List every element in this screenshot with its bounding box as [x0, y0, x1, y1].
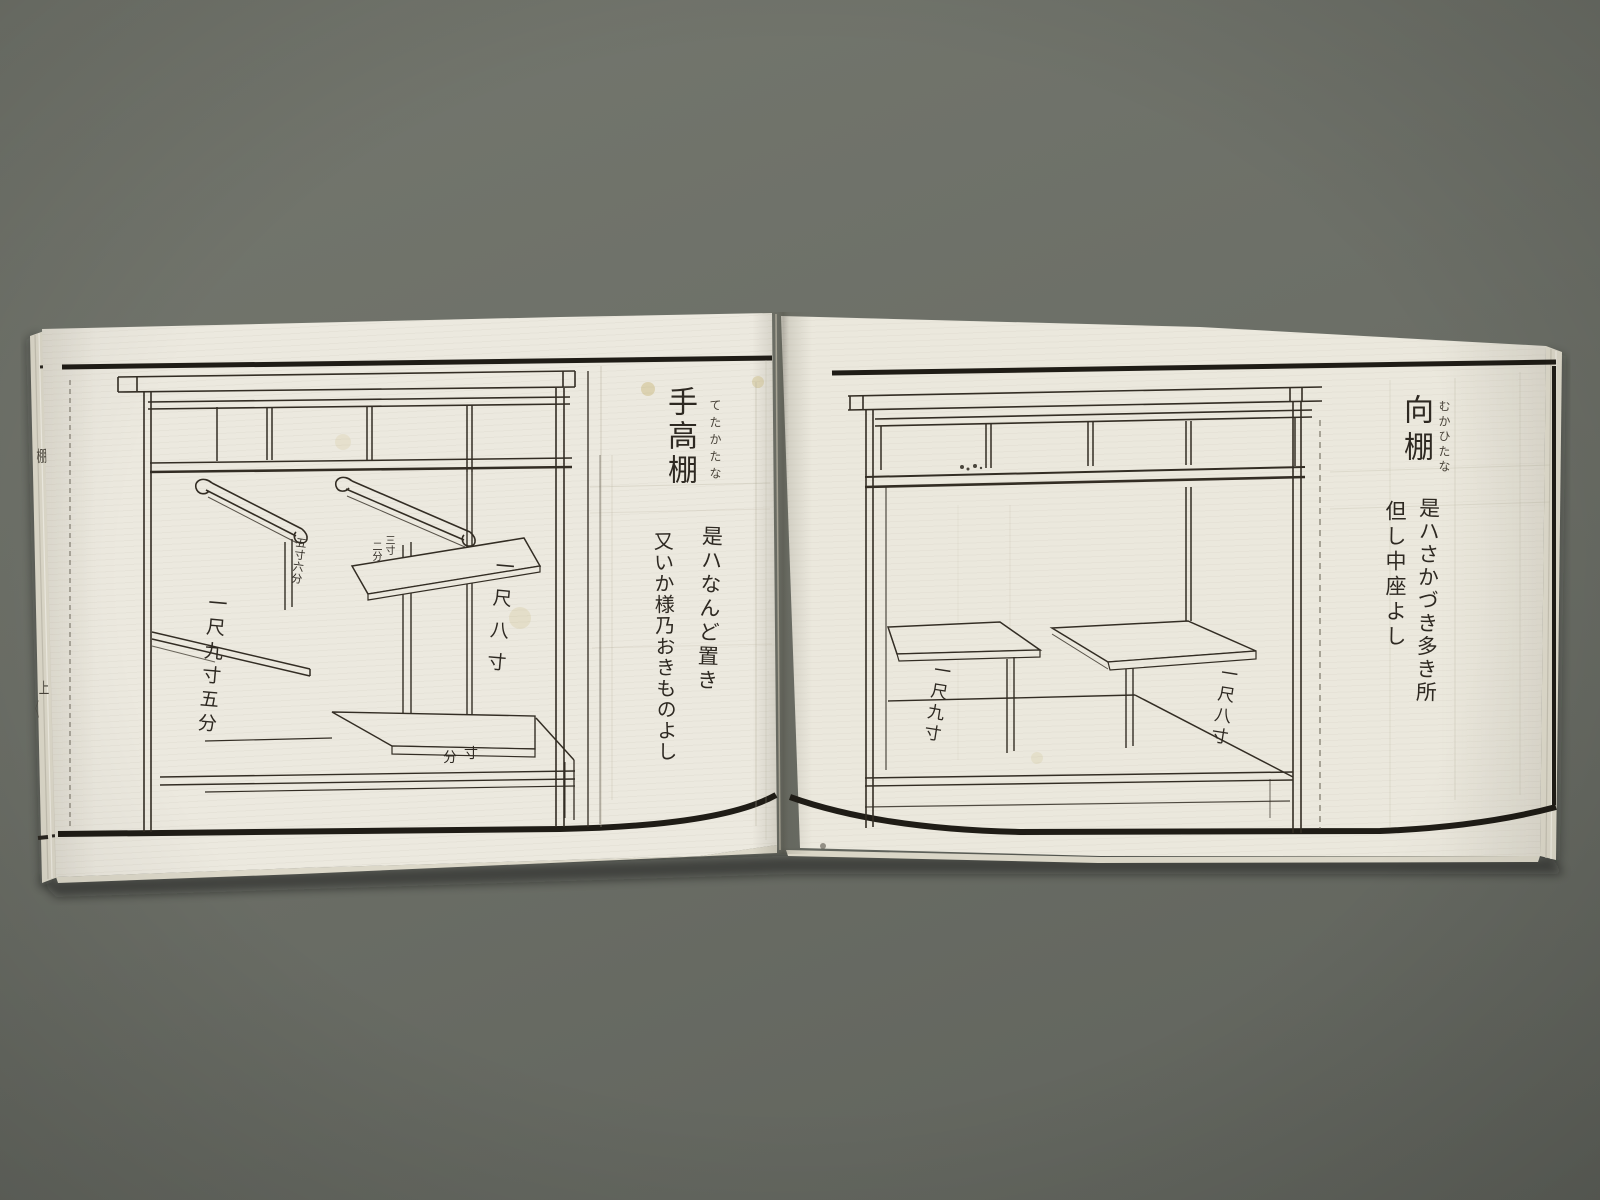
right-page-caption-1: 是ハさかづき多き所: [1414, 497, 1439, 704]
book-illustration: [0, 0, 1600, 1200]
right-page-caption-2: 但し中座よし: [1384, 500, 1405, 650]
left-page-caption-1: 是ハなんど置き: [695, 525, 722, 694]
left-page-title: 手高棚: [664, 386, 694, 488]
left-page-caption-2: 又いか様乃おきものよし: [652, 531, 676, 762]
fore-edge-small-marks: 〳〵: [33, 700, 39, 718]
left-page-furigana: てたかたな: [709, 399, 721, 484]
left-page-note-base-b: 分: [443, 751, 457, 765]
right-page-furigana: むかひたな: [1438, 400, 1450, 475]
page-surfaces: [42, 312, 1546, 877]
book-photo-scene: 手高棚 てたかたな 是ハなんど置き 又いか様乃おきものよし 一尺九寸五分 一尺八…: [0, 0, 1600, 1200]
left-page-note-post-right-b: 二分: [370, 541, 380, 561]
right-page-title: 向棚: [1400, 394, 1430, 468]
left-page-note-base-a: 寸: [464, 747, 478, 761]
left-page-note-post-right-a: 三寸: [383, 535, 393, 555]
fore-edge-title-char: 棚: [35, 447, 46, 464]
fore-edge-volume-char: 上: [38, 680, 49, 695]
